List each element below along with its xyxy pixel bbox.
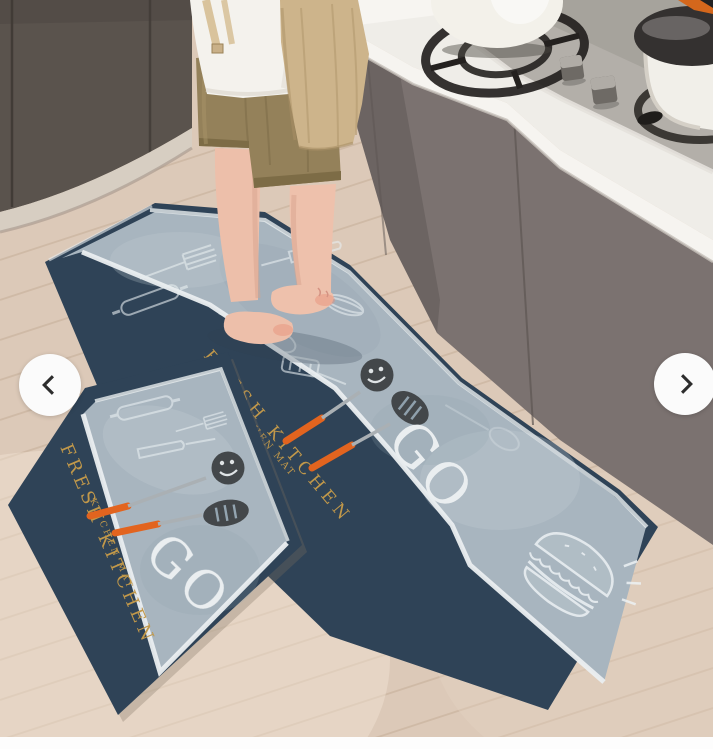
cooking-pot: [634, 0, 713, 140]
carousel-prev-button[interactable]: [19, 354, 81, 416]
kettle: [431, 0, 563, 58]
product-image-carousel: FRESH KITCHEN KITCHEN MAT GO: [0, 0, 713, 749]
carousel-next-button[interactable]: [654, 353, 713, 415]
chevron-right-icon: [671, 370, 699, 398]
chevron-left-icon: [36, 371, 64, 399]
page-bottom-strip: [0, 737, 713, 749]
product-photo: FRESH KITCHEN KITCHEN MAT GO: [0, 0, 713, 749]
